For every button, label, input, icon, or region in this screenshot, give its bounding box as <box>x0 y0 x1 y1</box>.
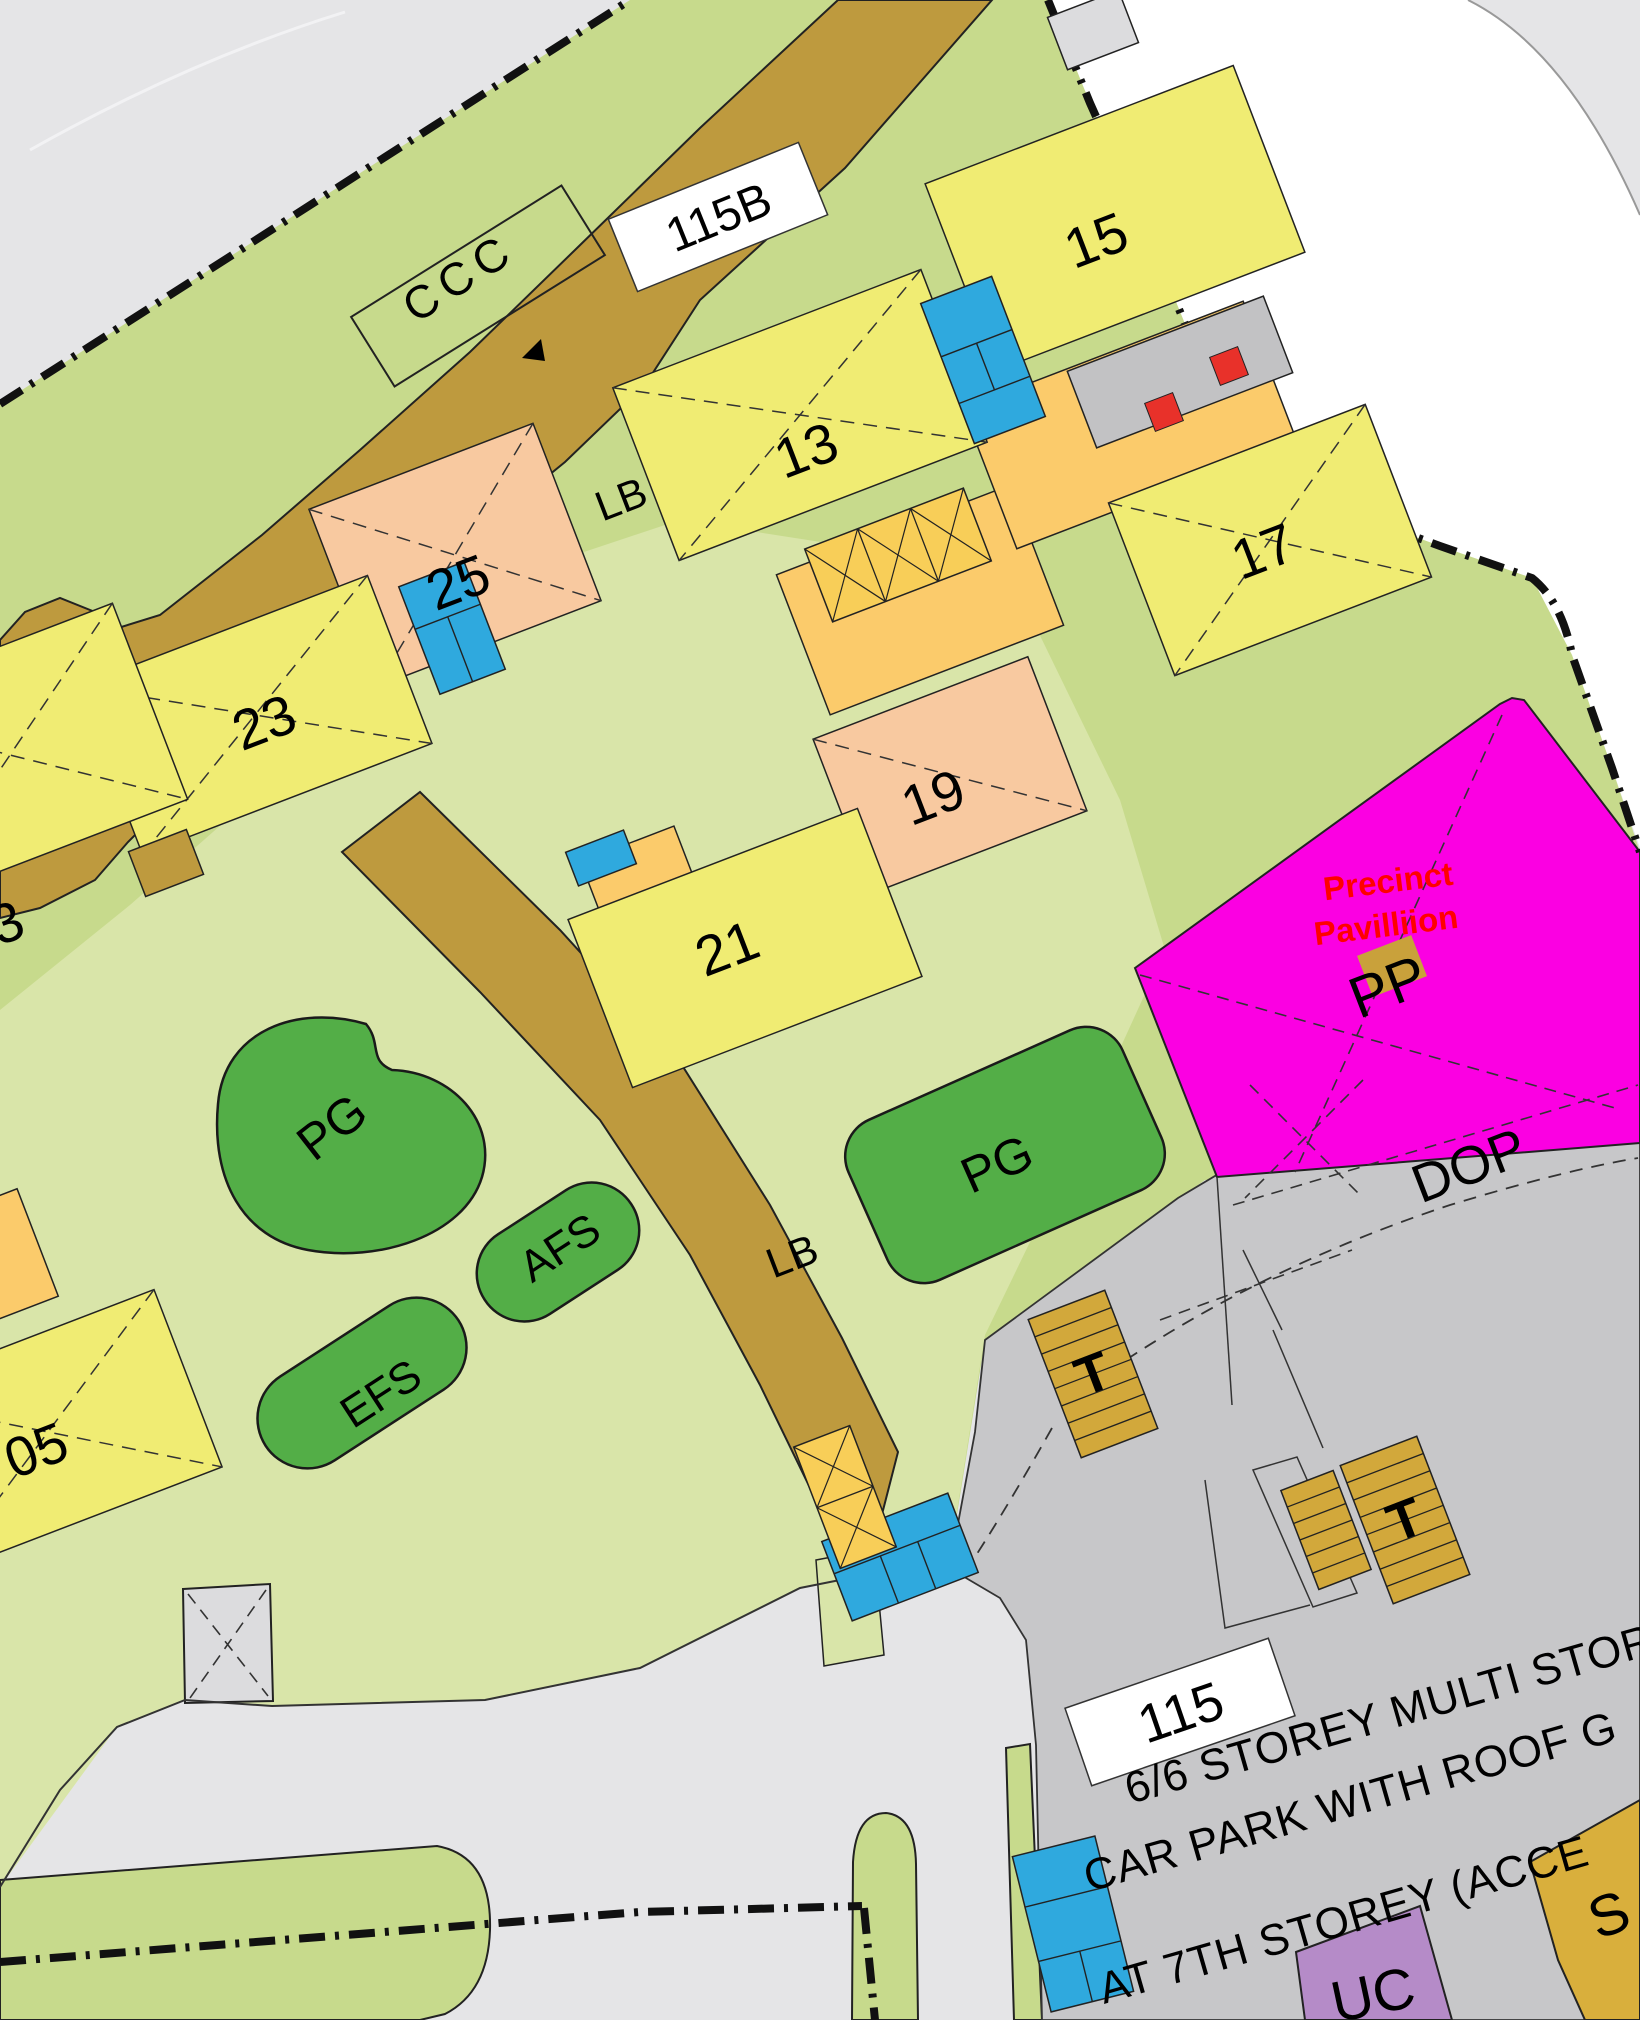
site-plan-svg: TTCCC115B151325LB231719210305PrecinctPav… <box>0 0 1640 2020</box>
site-plan-stage: TTCCC115B151325LB231719210305PrecinctPav… <box>0 0 1640 2020</box>
